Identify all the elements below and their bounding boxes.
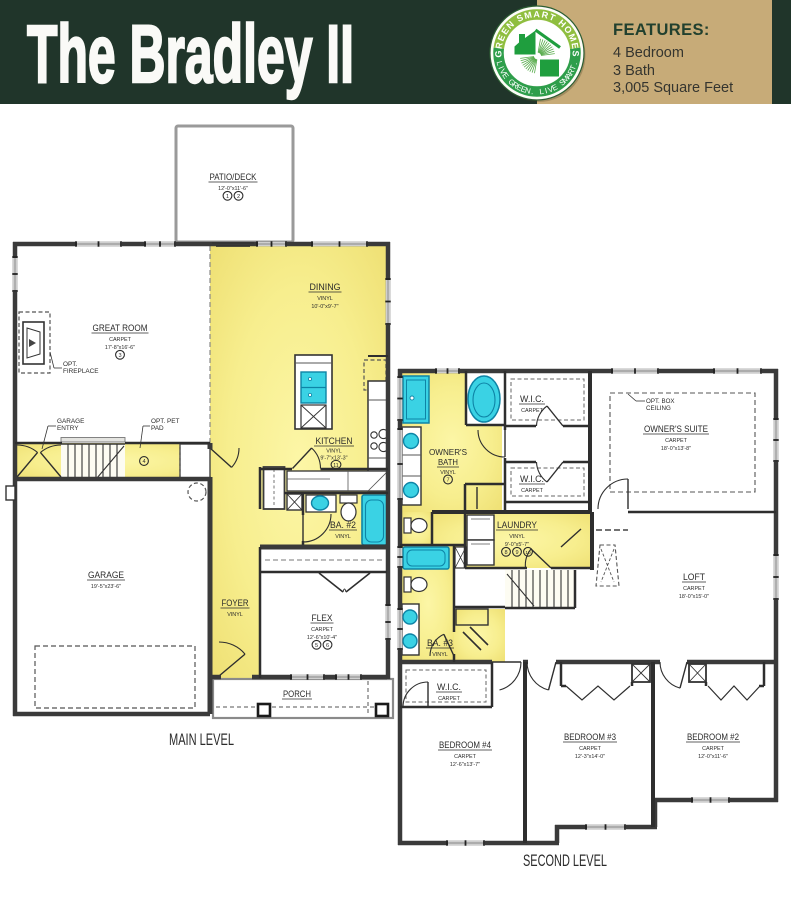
svg-text:OPT. PET: OPT. PET: [151, 418, 180, 425]
svg-text:VINYL: VINYL: [335, 534, 351, 540]
svg-text:CEILING: CEILING: [646, 405, 671, 412]
svg-text:BA. #2: BA. #2: [330, 520, 356, 530]
svg-text:12'-0"x11'-6": 12'-0"x11'-6": [218, 186, 248, 192]
svg-text:CARPET: CARPET: [683, 586, 706, 592]
svg-text:BATH: BATH: [438, 457, 458, 467]
svg-text:12'-3"x14'-0": 12'-3"x14'-0": [575, 754, 605, 760]
svg-text:The Bradley II: The Bradley II: [27, 9, 354, 100]
svg-text:3,005 Square Feet: 3,005 Square Feet: [613, 80, 733, 96]
svg-text:10'-0"x9'-7": 10'-0"x9'-7": [311, 304, 338, 310]
svg-text:W.I.C.: W.I.C.: [520, 394, 544, 404]
svg-text:18'-0"x15'-0": 18'-0"x15'-0": [679, 594, 709, 600]
svg-text:CARPET: CARPET: [109, 337, 132, 343]
svg-text:6: 6: [326, 643, 329, 649]
svg-text:LOFT: LOFT: [683, 572, 705, 583]
svg-text:FIREPLACE: FIREPLACE: [63, 368, 99, 375]
svg-text:5: 5: [315, 643, 318, 649]
svg-text:3 Bath: 3 Bath: [613, 63, 655, 79]
svg-text:CARPET: CARPET: [579, 746, 602, 752]
svg-text:CARPET: CARPET: [521, 488, 544, 494]
svg-text:12'-6"x10'-4": 12'-6"x10'-4": [307, 635, 337, 641]
svg-text:PORCH: PORCH: [283, 689, 311, 699]
svg-text:CARPET: CARPET: [521, 408, 544, 414]
svg-text:ENTRY: ENTRY: [57, 425, 79, 432]
svg-text:12'-6"x13'-7": 12'-6"x13'-7": [450, 762, 480, 768]
svg-text:VINYL: VINYL: [432, 652, 448, 658]
svg-text:VINYL: VINYL: [509, 534, 525, 540]
svg-text:BEDROOM #3: BEDROOM #3: [564, 732, 616, 743]
svg-text:4 Bedroom: 4 Bedroom: [613, 45, 684, 61]
svg-text:DINING: DINING: [310, 282, 341, 293]
svg-text:LAUNDRY: LAUNDRY: [497, 520, 538, 531]
svg-text:CARPET: CARPET: [665, 438, 688, 444]
svg-text:CARPET: CARPET: [311, 627, 334, 633]
svg-text:18'-0"x13'-8": 18'-0"x13'-8": [661, 446, 691, 452]
svg-text:PAD: PAD: [151, 425, 164, 432]
svg-text:W.I.C.: W.I.C.: [520, 474, 544, 484]
svg-text:FLEX: FLEX: [312, 613, 333, 623]
svg-text:CARPET: CARPET: [454, 754, 477, 760]
svg-text:7: 7: [446, 478, 449, 484]
svg-text:BEDROOM #2: BEDROOM #2: [687, 732, 739, 743]
svg-text:3: 3: [118, 353, 121, 359]
svg-text:FEATURES:: FEATURES:: [613, 21, 710, 39]
svg-text:OWNER'S: OWNER'S: [429, 447, 467, 457]
svg-text:VINYL: VINYL: [227, 612, 243, 618]
svg-text:BA. #3: BA. #3: [427, 638, 453, 648]
svg-text:VINYL: VINYL: [317, 296, 333, 302]
svg-text:W.I.C.: W.I.C.: [437, 682, 461, 692]
svg-text:11: 11: [333, 463, 338, 469]
svg-text:SECOND LEVEL: SECOND LEVEL: [523, 852, 607, 870]
svg-text:MAIN LEVEL: MAIN LEVEL: [169, 731, 234, 749]
svg-text:KITCHEN: KITCHEN: [316, 436, 353, 447]
svg-text:4: 4: [142, 459, 145, 465]
svg-text:PATIO/DECK: PATIO/DECK: [210, 172, 257, 182]
svg-text:CARPET: CARPET: [702, 746, 725, 752]
svg-text:GREAT ROOM: GREAT ROOM: [93, 323, 148, 334]
svg-text:10: 10: [525, 550, 531, 556]
svg-text:CARPET: CARPET: [438, 696, 461, 702]
svg-text:OPT.: OPT.: [63, 361, 77, 368]
svg-text:12'-0"x11'-6": 12'-0"x11'-6": [698, 754, 728, 760]
svg-text:VINYL: VINYL: [326, 449, 342, 455]
svg-text:OPT. BOX: OPT. BOX: [646, 398, 675, 405]
svg-text:FOYER: FOYER: [222, 598, 249, 608]
svg-text:1: 1: [226, 194, 229, 200]
svg-text:OWNER'S SUITE: OWNER'S SUITE: [644, 424, 708, 435]
svg-text:GARAGE: GARAGE: [88, 570, 124, 580]
svg-text:2: 2: [237, 194, 240, 200]
svg-text:BEDROOM #4: BEDROOM #4: [439, 740, 491, 751]
svg-text:GARAGE: GARAGE: [57, 418, 84, 425]
svg-text:9: 9: [515, 550, 518, 556]
svg-text:8: 8: [504, 550, 507, 556]
svg-text:19'-5"x23'-6": 19'-5"x23'-6": [91, 584, 121, 590]
